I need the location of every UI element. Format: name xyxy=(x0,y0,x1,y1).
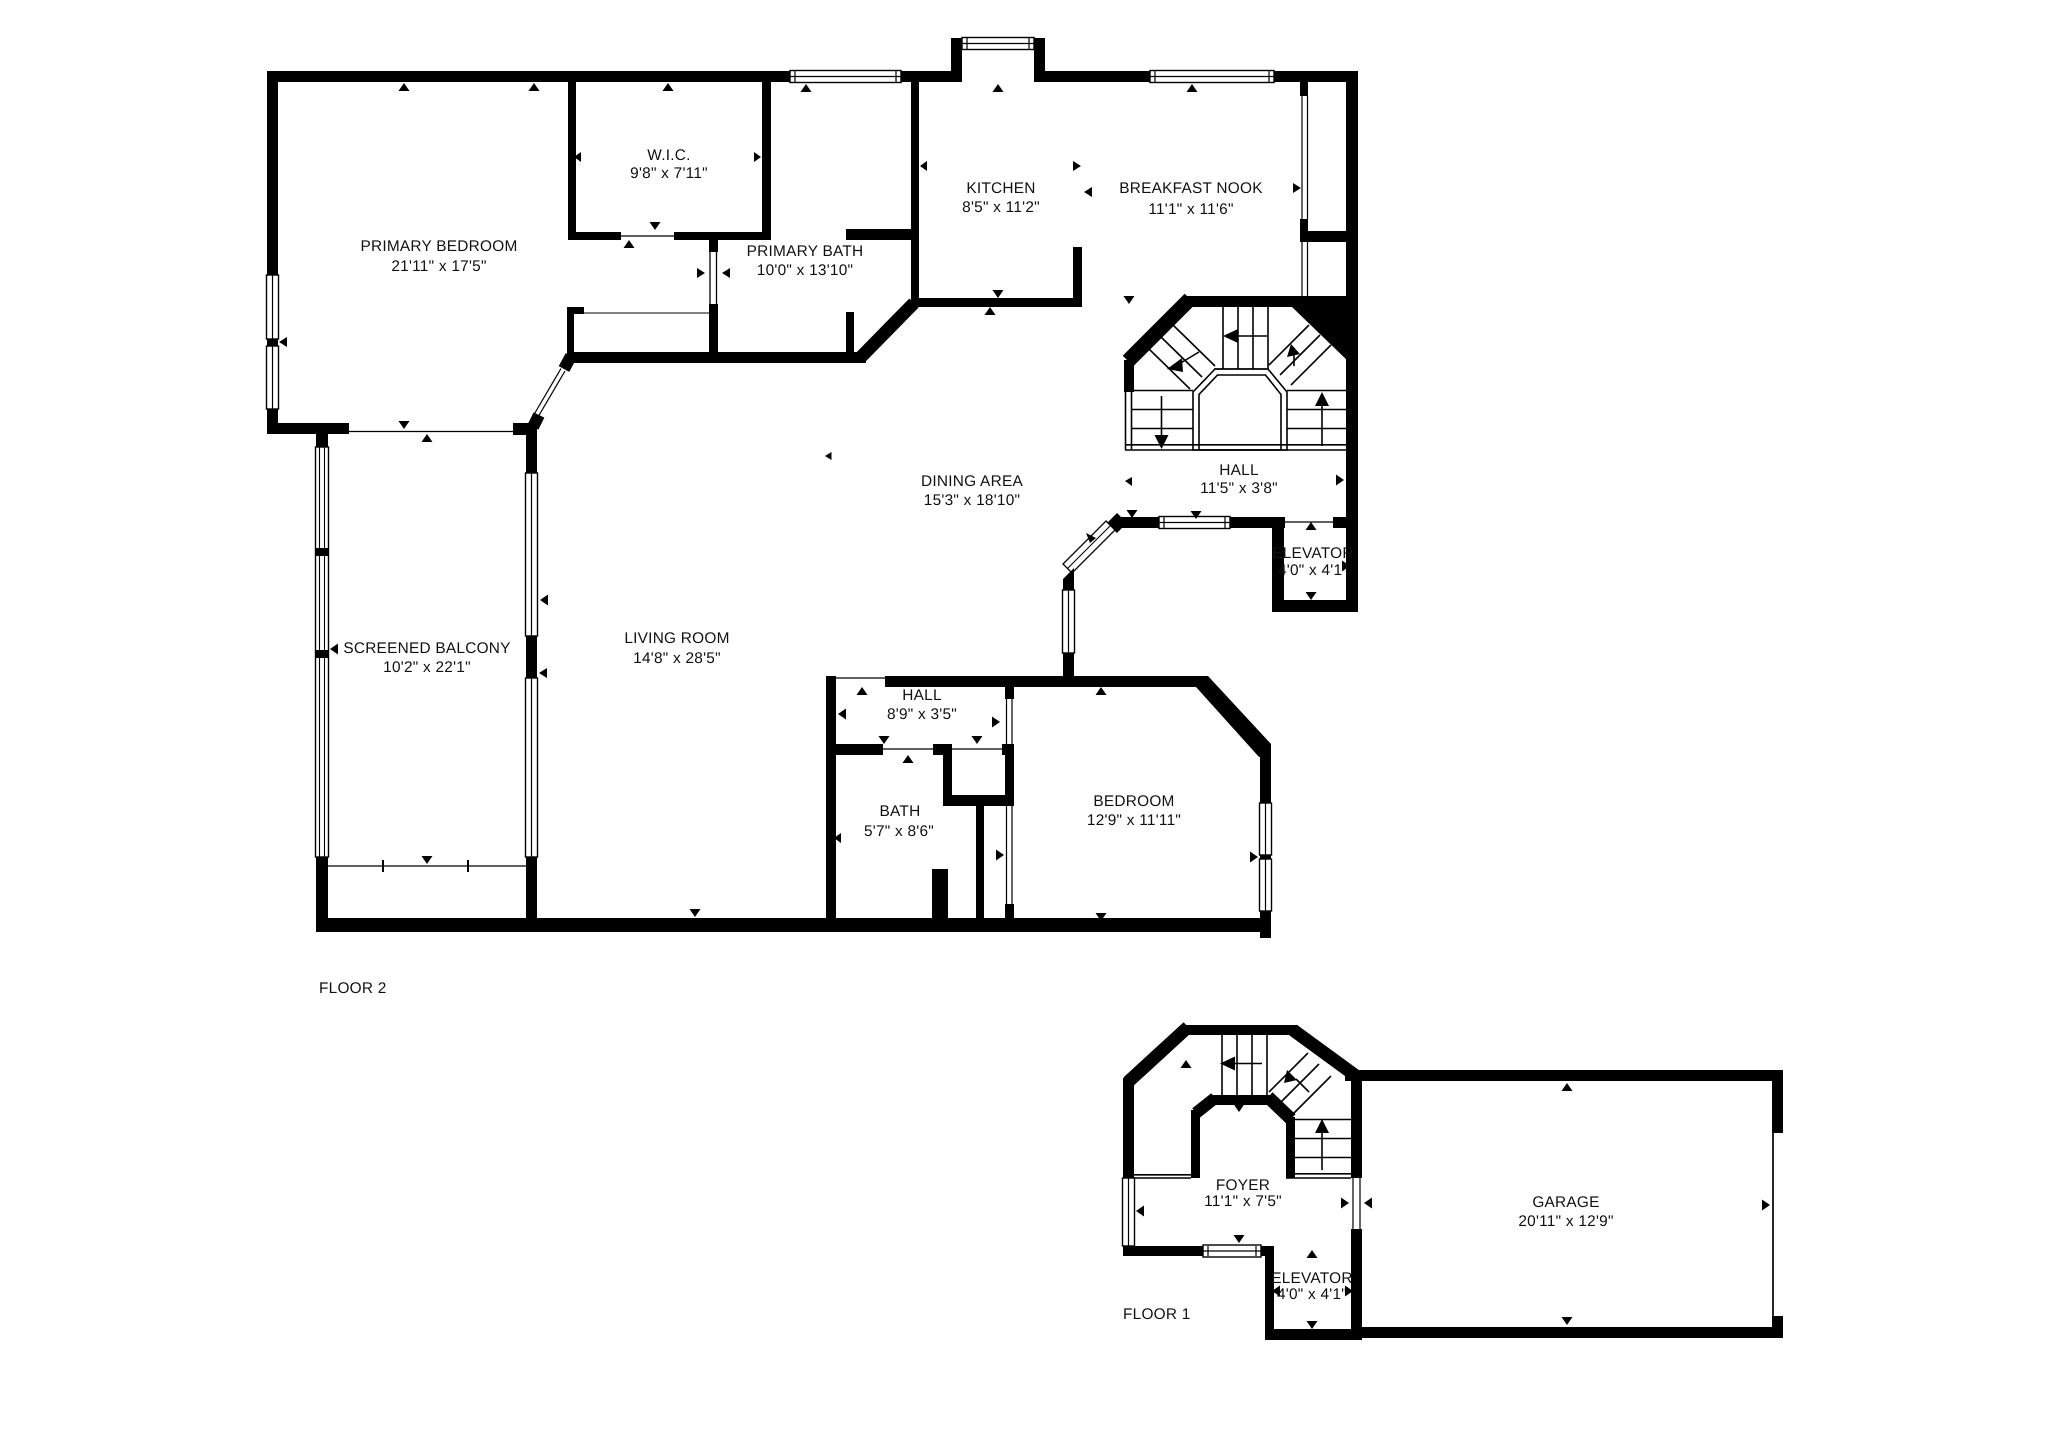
svg-text:4'0" x 4'1": 4'0" x 4'1" xyxy=(1278,562,1348,579)
svg-text:9'8" x 7'11": 9'8" x 7'11" xyxy=(630,165,708,182)
svg-text:HALL: HALL xyxy=(1219,462,1259,479)
svg-text:14'8" x 28'5": 14'8" x 28'5" xyxy=(633,650,721,667)
svg-text:SCREENED BALCONY: SCREENED BALCONY xyxy=(343,640,510,657)
svg-text:8'5" x 11'2": 8'5" x 11'2" xyxy=(962,199,1040,216)
svg-text:HALL: HALL xyxy=(902,687,942,704)
svg-text:5'7" x 8'6": 5'7" x 8'6" xyxy=(864,823,934,840)
svg-text:21'11" x 17'5": 21'11" x 17'5" xyxy=(391,258,486,275)
svg-text:10'0" x 13'10": 10'0" x 13'10" xyxy=(757,262,853,279)
svg-text:GARAGE: GARAGE xyxy=(1532,1194,1599,1211)
svg-text:11'5" x 3'8": 11'5" x 3'8" xyxy=(1200,480,1278,497)
svg-text:KITCHEN: KITCHEN xyxy=(966,180,1035,197)
svg-text:ELEVATOR: ELEVATOR xyxy=(1271,1270,1353,1287)
svg-text:DINING AREA: DINING AREA xyxy=(921,473,1023,490)
svg-text:FLOOR 1: FLOOR 1 xyxy=(1123,1306,1191,1323)
svg-text:BEDROOM: BEDROOM xyxy=(1093,793,1174,810)
svg-text:11'1" x 11'6": 11'1" x 11'6" xyxy=(1148,201,1233,218)
svg-text:LIVING ROOM: LIVING ROOM xyxy=(624,630,729,647)
svg-text:11'1" x 7'5": 11'1" x 7'5" xyxy=(1204,1193,1282,1210)
svg-text:FOYER: FOYER xyxy=(1216,1177,1270,1194)
svg-text:PRIMARY BEDROOM: PRIMARY BEDROOM xyxy=(360,238,517,255)
svg-text:PRIMARY BATH: PRIMARY BATH xyxy=(747,243,864,260)
svg-text:10'2" x 22'1": 10'2" x 22'1" xyxy=(383,659,471,676)
svg-text:20'11" x 12'9": 20'11" x 12'9" xyxy=(1518,1213,1613,1230)
svg-text:12'9" x 11'11": 12'9" x 11'11" xyxy=(1087,812,1181,829)
svg-text:BATH: BATH xyxy=(880,803,921,820)
svg-text:W.I.C.: W.I.C. xyxy=(647,147,690,164)
svg-text:4'0" x 4'1": 4'0" x 4'1" xyxy=(1277,1286,1347,1303)
svg-text:BREAKFAST NOOK: BREAKFAST NOOK xyxy=(1119,180,1263,197)
svg-text:15'3" x 18'10": 15'3" x 18'10" xyxy=(924,492,1020,509)
svg-text:ELEVATOR: ELEVATOR xyxy=(1272,545,1354,562)
svg-text:8'9" x 3'5": 8'9" x 3'5" xyxy=(887,706,957,723)
svg-text:FLOOR 2: FLOOR 2 xyxy=(319,980,387,997)
